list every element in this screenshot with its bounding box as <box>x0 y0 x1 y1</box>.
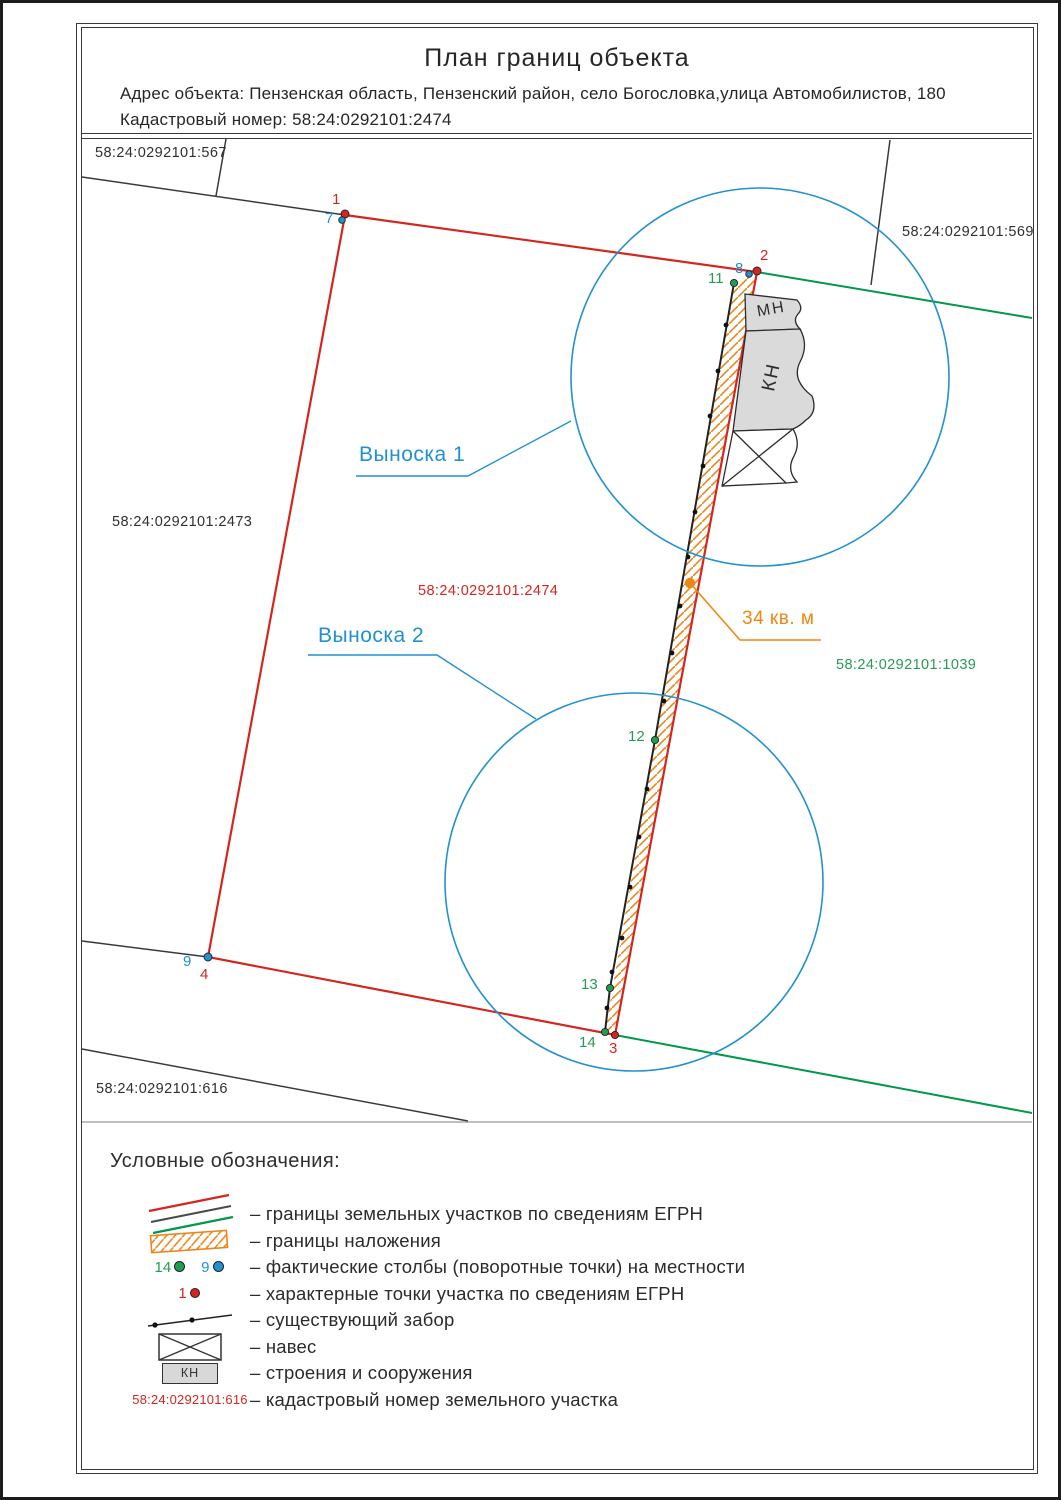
legend-cadastral-number-sample: 58:24:0292101:616 <box>132 1392 247 1407</box>
legend-label: – навес <box>250 1336 317 1358</box>
kn-box-icon: КН <box>162 1363 218 1384</box>
cadastral-plan-page: План границ объекта Адрес объекта: Пензе… <box>0 0 1061 1500</box>
cadastral-label-2473: 58:24:0292101:2473 <box>112 514 252 530</box>
point-11-dot <box>730 279 737 286</box>
legend: Условные обозначения: – границы земельны… <box>110 1150 990 1173</box>
point-3-dot <box>611 1031 618 1038</box>
legend-label: – характерные точки участка по сведениям… <box>250 1283 684 1305</box>
point-label-2: 2 <box>760 247 768 264</box>
cadastral-label-2474: 58:24:0292101:2474 <box>418 583 558 599</box>
legend-row-actual-posts: 14 9 – фактические столбы (поворотные то… <box>130 1254 990 1281</box>
structures-swatch: КН <box>130 1363 250 1384</box>
point-2-dot <box>753 267 761 275</box>
cadastral-label-569: 58:24:0292101:569 <box>902 224 1034 240</box>
point-label-12: 12 <box>628 728 645 745</box>
point-8-dot <box>746 271 753 278</box>
point-label-7: 7 <box>325 210 333 227</box>
point-label-9: 9 <box>183 953 191 970</box>
legend-row-overlap: – границы наложения <box>130 1228 990 1255</box>
point-label-3: 3 <box>609 1040 617 1057</box>
point-label-4: 4 <box>200 966 208 983</box>
callout-leader-2 <box>308 655 536 719</box>
legend-point-number-green: 14 <box>154 1259 171 1276</box>
cadastral-label-616: 58:24:0292101:616 <box>96 1081 228 1097</box>
legend-row-cadastral-number: 58:24:0292101:616 – кадастровый номер зе… <box>130 1387 990 1414</box>
cadastral-label-1039: 58:24:0292101:1039 <box>836 657 976 673</box>
legend-heading: Условные обозначения: <box>110 1150 990 1173</box>
point-label-14: 14 <box>579 1034 596 1051</box>
legend-row-fence: – существующий забор <box>130 1307 990 1334</box>
cadastral-number-swatch: 58:24:0292101:616 <box>130 1392 250 1407</box>
legend-label: – кадастровый номер земельного участка <box>250 1389 618 1411</box>
green-point-icon <box>174 1261 185 1272</box>
callout-circles <box>445 188 949 1071</box>
red-point-icon <box>190 1288 200 1298</box>
point-label-8: 8 <box>735 260 743 277</box>
overlap-strip <box>605 272 757 1035</box>
actual-posts-swatch: 14 9 <box>130 1259 250 1276</box>
point-label-1: 1 <box>332 191 340 208</box>
legend-point-number-red: 1 <box>178 1285 186 1302</box>
point-9-dot <box>204 953 212 961</box>
point-7-dot <box>339 217 346 224</box>
legend-label: – границы наложения <box>250 1230 441 1252</box>
canopy-swatch-icon <box>130 1332 250 1362</box>
legend-row-canopy: – навес <box>130 1334 990 1361</box>
point-label-11: 11 <box>708 270 724 287</box>
egrn-points-swatch: 1 <box>130 1285 250 1302</box>
existing-fence <box>605 283 734 1032</box>
point-14-dot <box>601 1028 608 1035</box>
legend-label: – существующий забор <box>250 1309 454 1331</box>
point-label-13: 13 <box>581 976 598 993</box>
point-12-dot <box>651 736 658 743</box>
legend-label: – фактические столбы (поворотные точки) … <box>250 1256 745 1278</box>
legend-row-egrn-points: 1 – характерные точки участка по сведени… <box>130 1281 990 1308</box>
cadastral-label-567: 58:24:0292101:567 <box>95 145 227 161</box>
overlap-swatch-icon <box>130 1228 250 1254</box>
legend-label: – строения и сооружения <box>250 1362 473 1384</box>
callout-label-1: Выноска 1 <box>359 443 465 467</box>
fence-swatch-icon <box>130 1310 250 1330</box>
blue-point-icon <box>213 1261 224 1272</box>
overlap-area-label: 34 кв. м <box>742 608 814 630</box>
legend-label: – границы земельных участков по сведения… <box>250 1203 703 1225</box>
callout-label-2: Выноска 2 <box>318 624 424 648</box>
legend-point-number-blue: 9 <box>201 1259 209 1276</box>
legend-row-egrn-borders: – границы земельных участков по сведения… <box>130 1201 990 1228</box>
point-13-dot <box>606 984 613 991</box>
legend-row-structures: КН – строения и сооружения <box>130 1360 990 1387</box>
